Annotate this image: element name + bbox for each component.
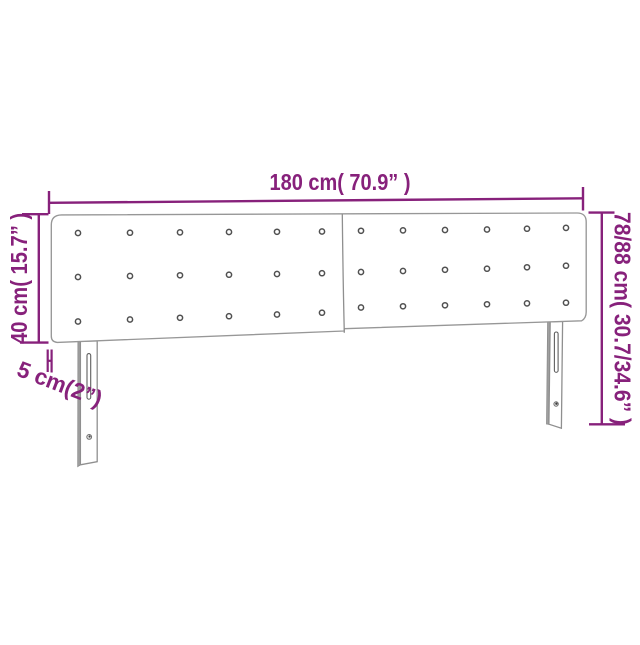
svg-text:180 cm( 70.9” ): 180 cm( 70.9” ) — [270, 169, 411, 195]
svg-text:40 cm( 15.7” ): 40 cm( 15.7” ) — [6, 213, 32, 344]
svg-text:78/88 cm( 30.7/34.6” ): 78/88 cm( 30.7/34.6” ) — [610, 212, 636, 425]
